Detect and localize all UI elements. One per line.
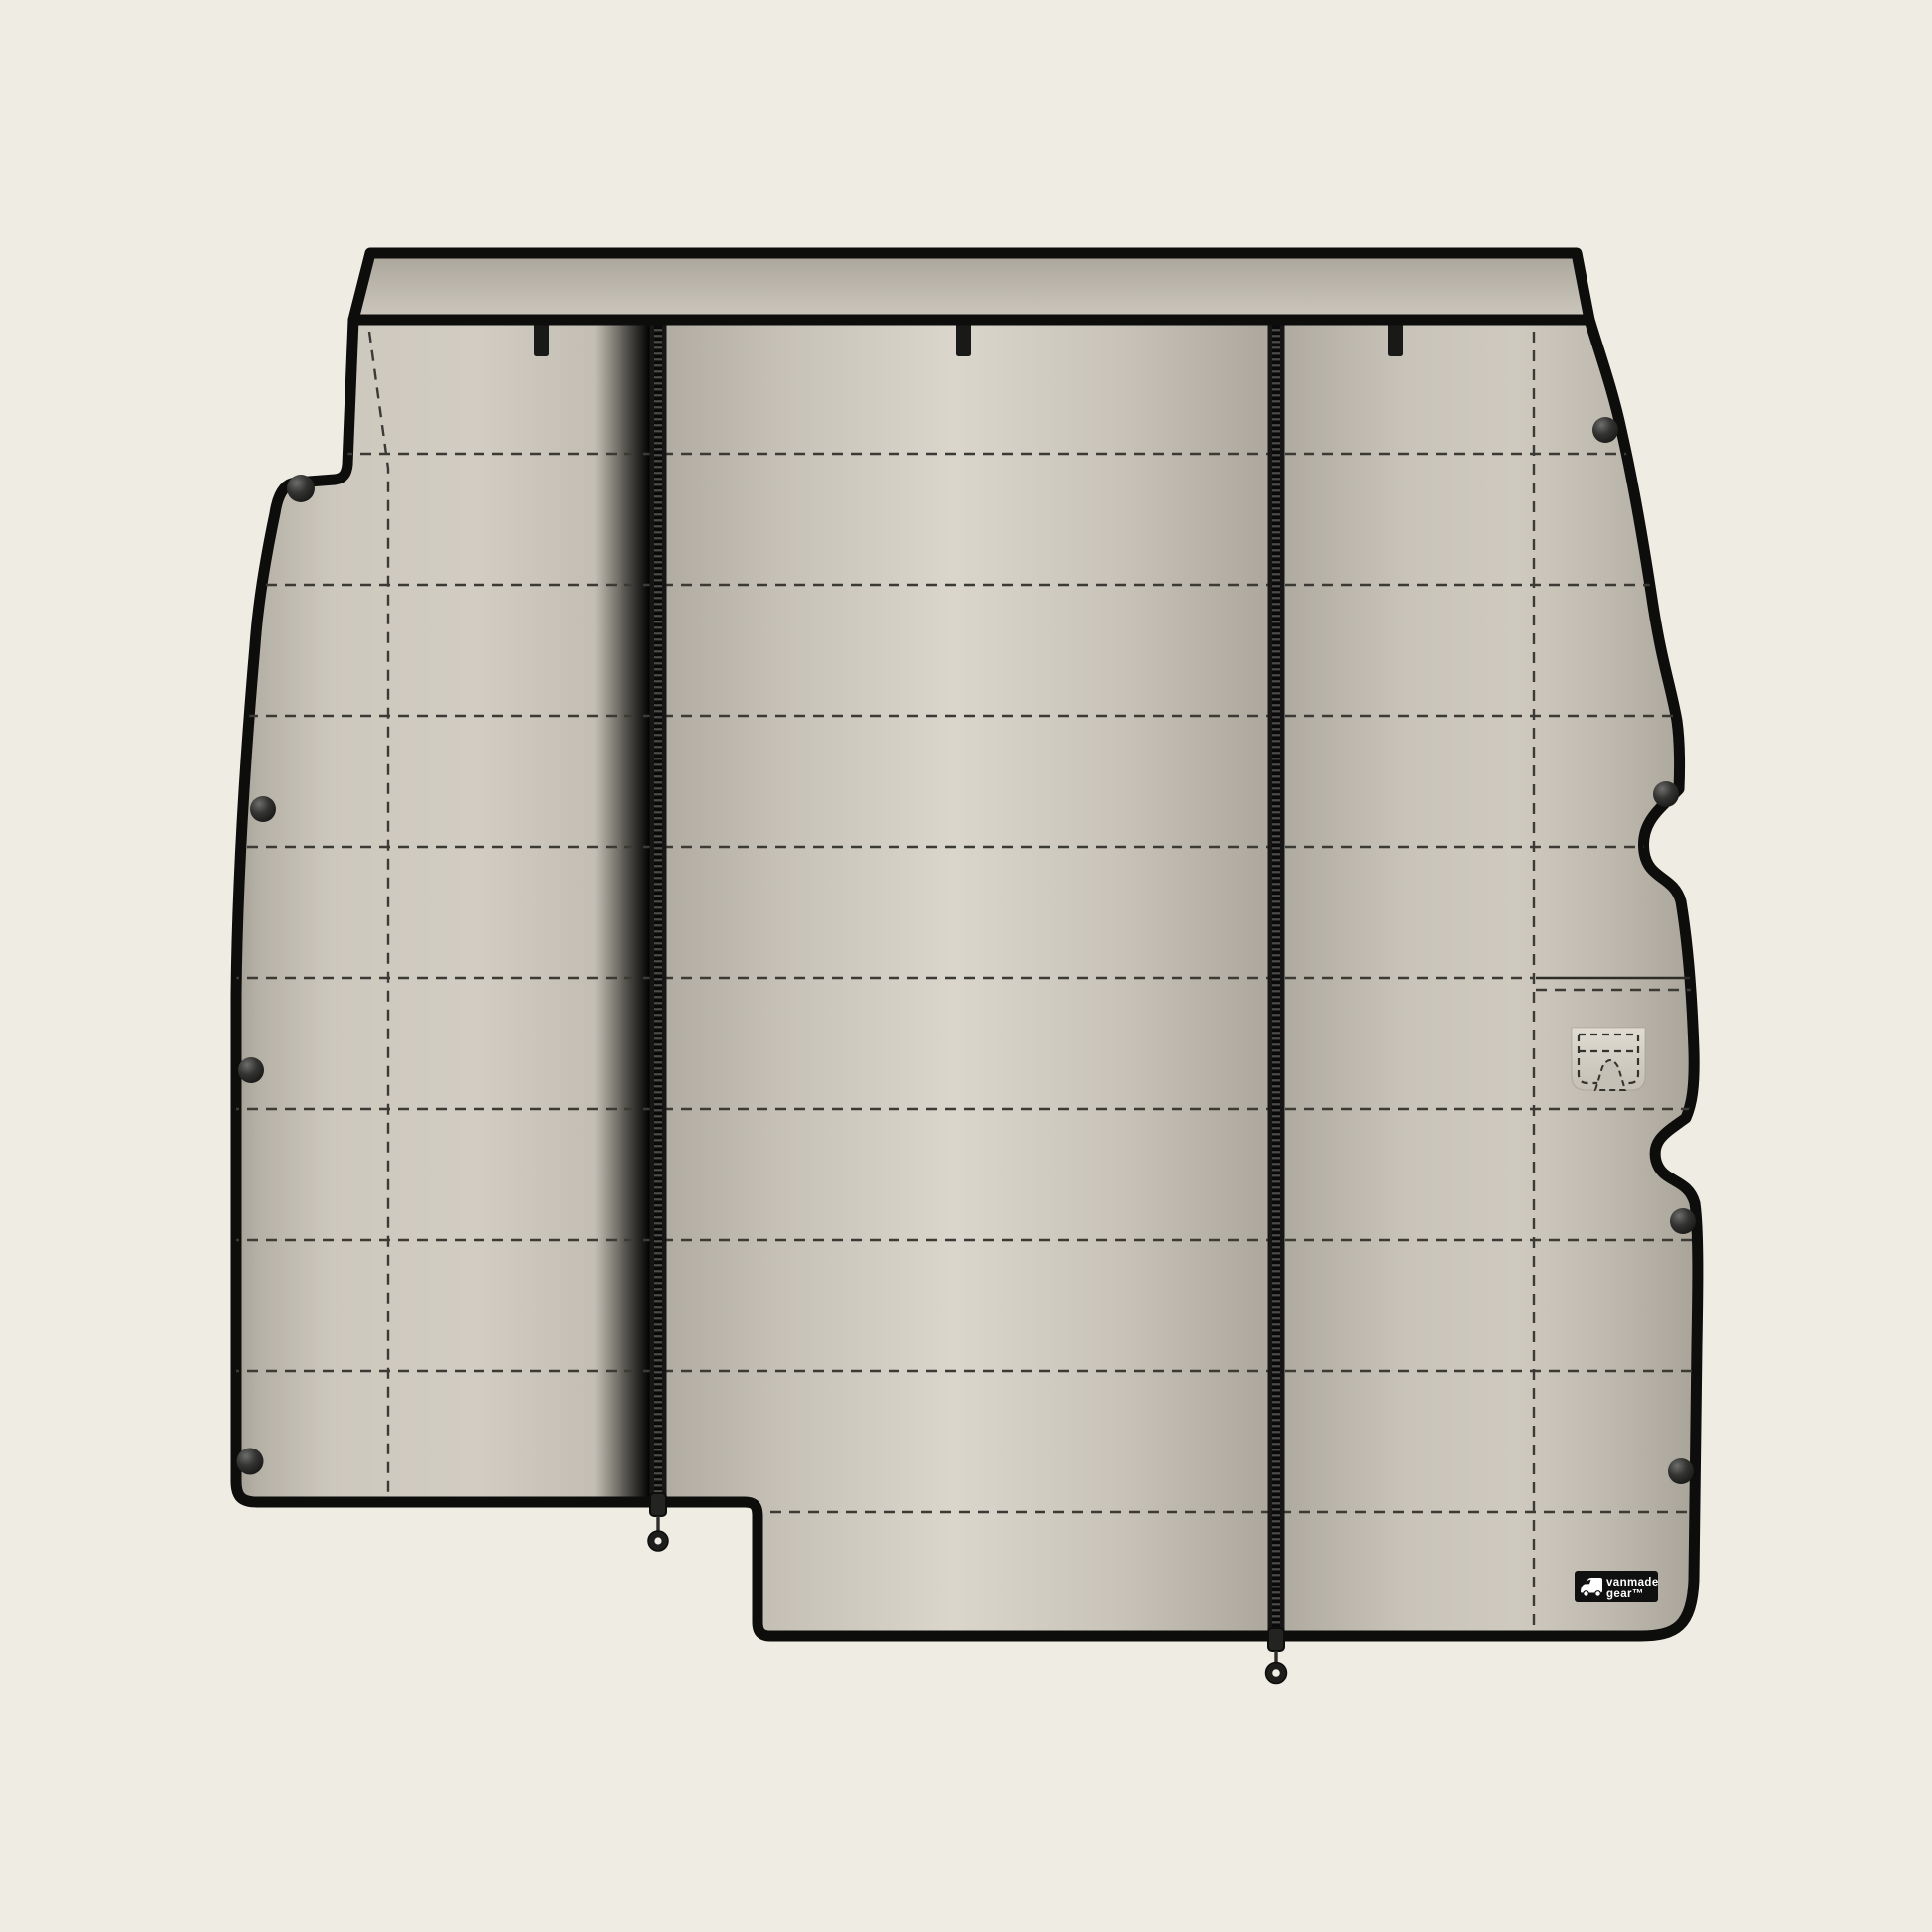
snap-button bbox=[1653, 781, 1679, 807]
top-band bbox=[353, 253, 1589, 320]
illustration-canvas: vanmade gear™ bbox=[0, 0, 1932, 1932]
zipper-slider bbox=[650, 1493, 666, 1516]
zipper-teeth bbox=[654, 324, 662, 1504]
snap-button bbox=[287, 475, 315, 502]
logo-text-line1: vanmade bbox=[1606, 1577, 1659, 1588]
zipper-slider bbox=[1268, 1628, 1284, 1651]
van-icon-wheel bbox=[1595, 1591, 1601, 1597]
snap-button bbox=[237, 1449, 264, 1475]
snap-button bbox=[238, 1057, 264, 1083]
van-icon-wheel bbox=[1584, 1591, 1589, 1597]
zipper-pull-ring-hole bbox=[654, 1537, 661, 1544]
snap-button bbox=[1670, 1208, 1696, 1234]
snap-button bbox=[1592, 417, 1618, 443]
logo-patch: vanmade gear™ bbox=[1575, 1571, 1659, 1602]
snap-button bbox=[250, 796, 276, 822]
snap-button bbox=[1668, 1458, 1694, 1484]
handle-flap bbox=[1572, 1028, 1645, 1090]
zipper-pull-ring-hole bbox=[1272, 1669, 1280, 1677]
zipper-right bbox=[1268, 324, 1285, 1638]
logo-text-line2: gear™ bbox=[1606, 1588, 1644, 1600]
zipper-left bbox=[650, 324, 667, 1504]
zipper-teeth bbox=[1272, 324, 1280, 1638]
